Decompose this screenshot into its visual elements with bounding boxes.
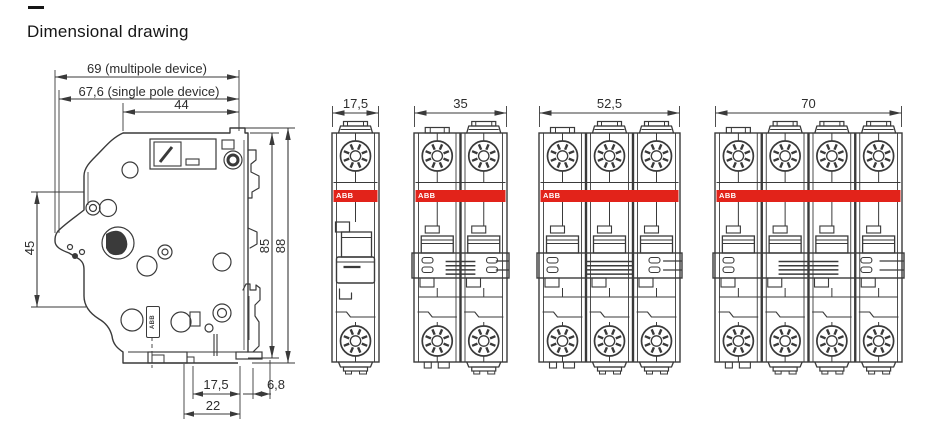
abb-band-label-4p: ABB: [719, 190, 736, 202]
dim-label-clip-depth: 6,8: [254, 377, 298, 392]
dim-label-housing-height: 85: [257, 232, 273, 260]
dimensional-drawing-page: Dimensional drawing 69 (multipole device…: [0, 0, 938, 445]
abb-band-label-2p: ABB: [418, 190, 435, 202]
dim-label-overall-height: 88: [273, 232, 289, 260]
abb-side-logo-text: ABB: [150, 315, 156, 329]
abb-band-label-1p: ABB: [336, 190, 353, 202]
dim-label-upper-depth: 44: [123, 97, 240, 112]
front-width-label-3p: 52,5: [539, 96, 680, 111]
dim-label-overall-multipole: 69 (multipole device): [53, 61, 241, 76]
abb-band-label-3p: ABB: [543, 190, 560, 202]
dim-label-lower-depth: 17,5: [190, 377, 242, 392]
dim-label-face-height: 45: [22, 234, 38, 262]
dim-label-base-depth: 22: [184, 398, 242, 413]
front-width-label-4p: 70: [715, 96, 902, 111]
front-width-label-1p: 17,5: [332, 96, 379, 111]
abb-side-logo: ABB: [146, 306, 160, 338]
front-width-label-2p: 35: [414, 96, 507, 111]
